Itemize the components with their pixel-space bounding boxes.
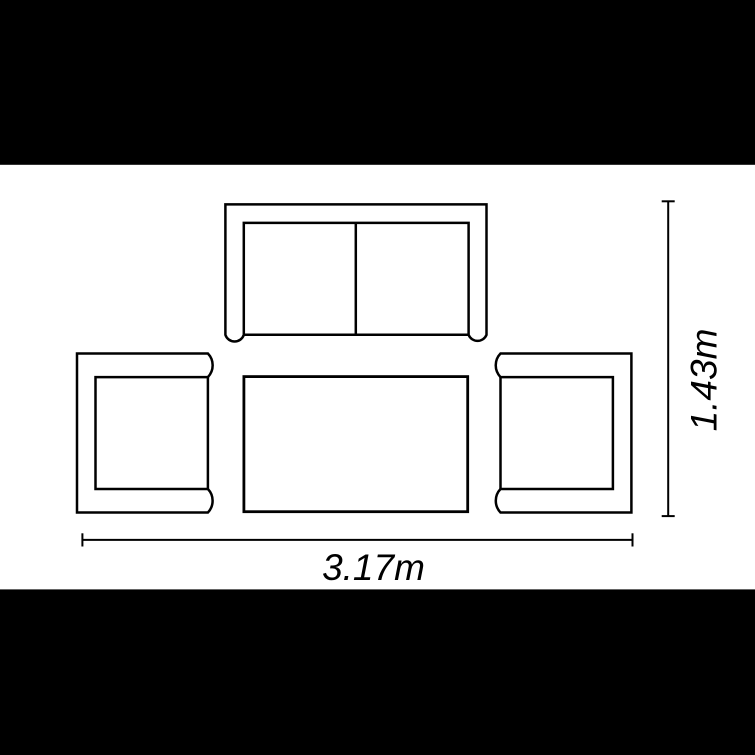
svg-text:1.43m: 1.43m: [683, 329, 724, 432]
svg-text:3.17m: 3.17m: [322, 547, 425, 588]
